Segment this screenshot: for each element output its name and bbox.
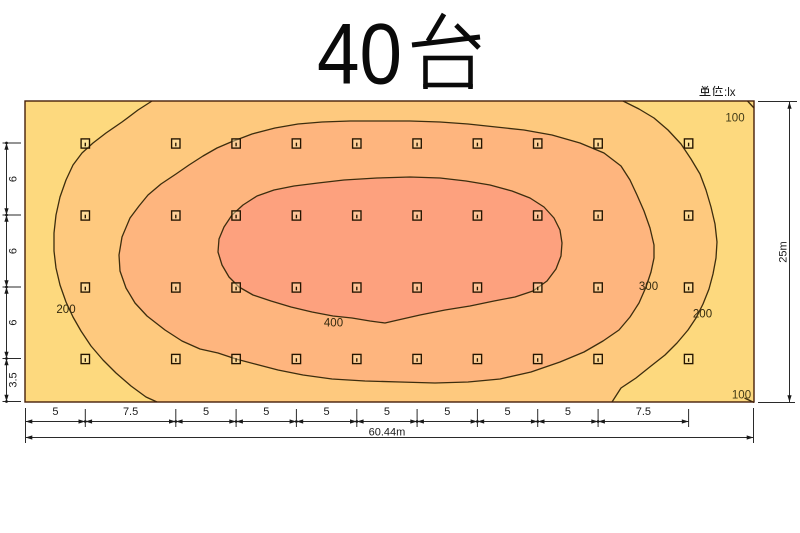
svg-text:5: 5 <box>565 406 571 418</box>
svg-text:5: 5 <box>52 406 58 418</box>
svg-text:200: 200 <box>56 304 75 316</box>
svg-text:5: 5 <box>384 406 390 418</box>
svg-text:400: 400 <box>324 318 343 330</box>
svg-text:6: 6 <box>8 248 20 254</box>
svg-text:7.5: 7.5 <box>123 406 138 418</box>
svg-text:60.44m: 60.44m <box>369 427 406 439</box>
svg-text:100: 100 <box>725 113 744 125</box>
svg-text:300: 300 <box>639 281 658 293</box>
svg-text:40: 40 <box>317 7 402 103</box>
svg-text:7.5: 7.5 <box>636 406 651 418</box>
svg-text:5: 5 <box>263 406 269 418</box>
svg-text:5: 5 <box>444 406 450 418</box>
svg-text:6: 6 <box>8 319 20 325</box>
svg-text:5: 5 <box>203 406 209 418</box>
svg-text::lx: :lx <box>724 87 736 99</box>
svg-text:200: 200 <box>693 309 712 321</box>
svg-text:3.5: 3.5 <box>8 372 20 387</box>
svg-text:25m: 25m <box>778 241 790 262</box>
svg-text:100: 100 <box>732 390 751 402</box>
svg-text:5: 5 <box>505 406 511 418</box>
svg-text:5: 5 <box>324 406 330 418</box>
svg-text:6: 6 <box>8 176 20 182</box>
